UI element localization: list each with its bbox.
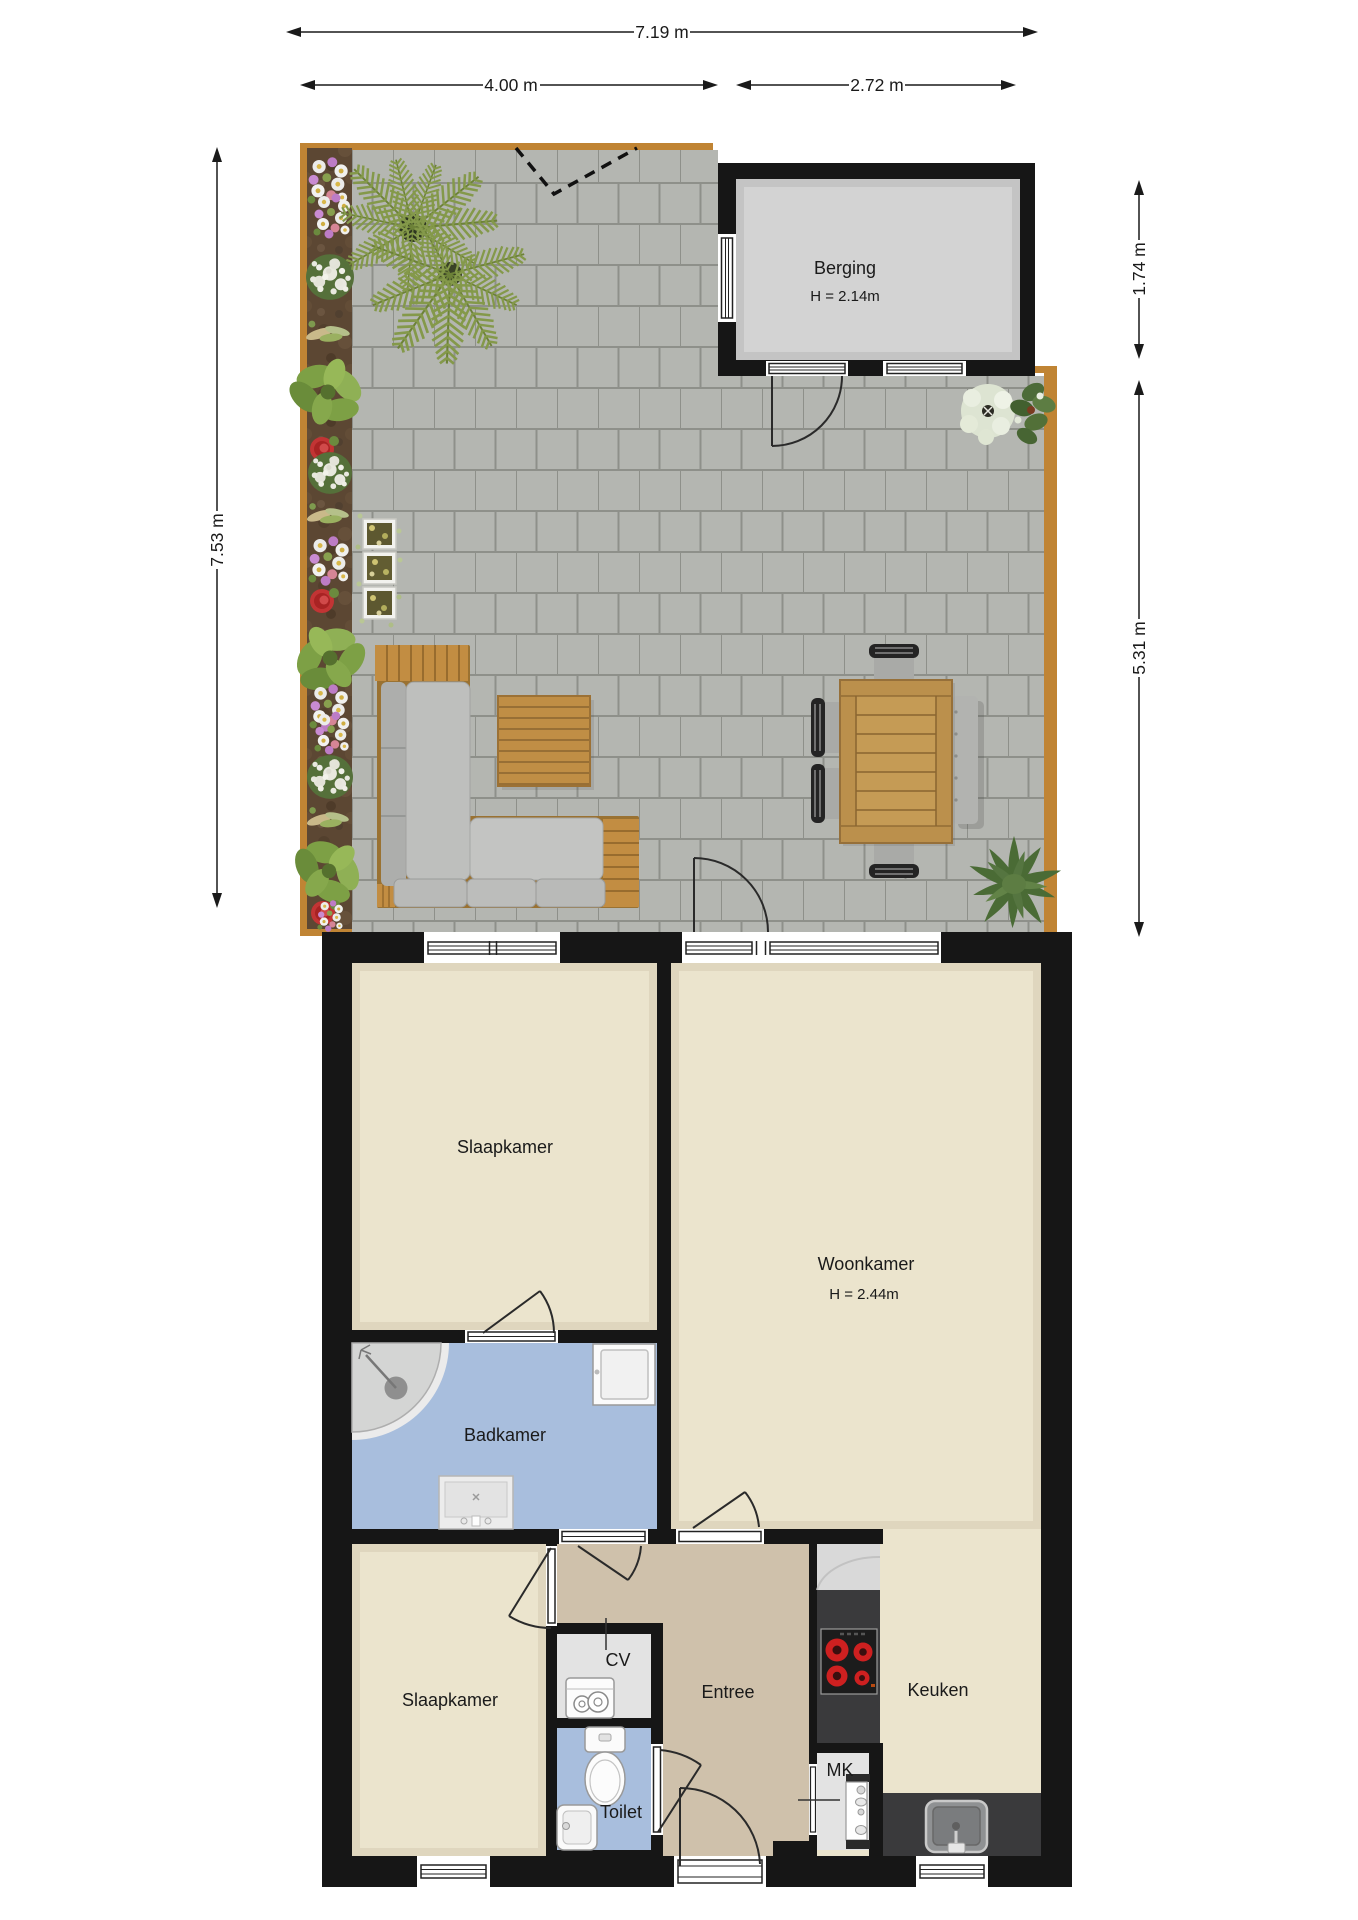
svg-text:H = 2.14m: H = 2.14m <box>810 288 880 305</box>
svg-text:Entree: Entree <box>701 1682 754 1702</box>
svg-text:Toilet: Toilet <box>600 1802 642 1822</box>
svg-text:Slaapkamer: Slaapkamer <box>402 1690 498 1710</box>
svg-text:4.00 m: 4.00 m <box>484 75 538 95</box>
svg-text:7.53 m: 7.53 m <box>207 513 227 567</box>
svg-text:5.31 m: 5.31 m <box>1129 621 1149 675</box>
svg-text:1.74 m: 1.74 m <box>1129 242 1149 296</box>
svg-text:MK: MK <box>827 1760 854 1780</box>
svg-text:Slaapkamer: Slaapkamer <box>457 1137 553 1157</box>
svg-text:2.72 m: 2.72 m <box>850 75 904 95</box>
svg-text:Woonkamer: Woonkamer <box>818 1254 915 1274</box>
svg-text:CV: CV <box>605 1650 630 1670</box>
svg-text:Berging: Berging <box>814 258 876 278</box>
svg-text:Badkamer: Badkamer <box>464 1425 546 1445</box>
svg-text:7.19 m: 7.19 m <box>635 22 689 42</box>
svg-text:Keuken: Keuken <box>907 1680 968 1700</box>
svg-text:H = 2.44m: H = 2.44m <box>829 1286 899 1303</box>
